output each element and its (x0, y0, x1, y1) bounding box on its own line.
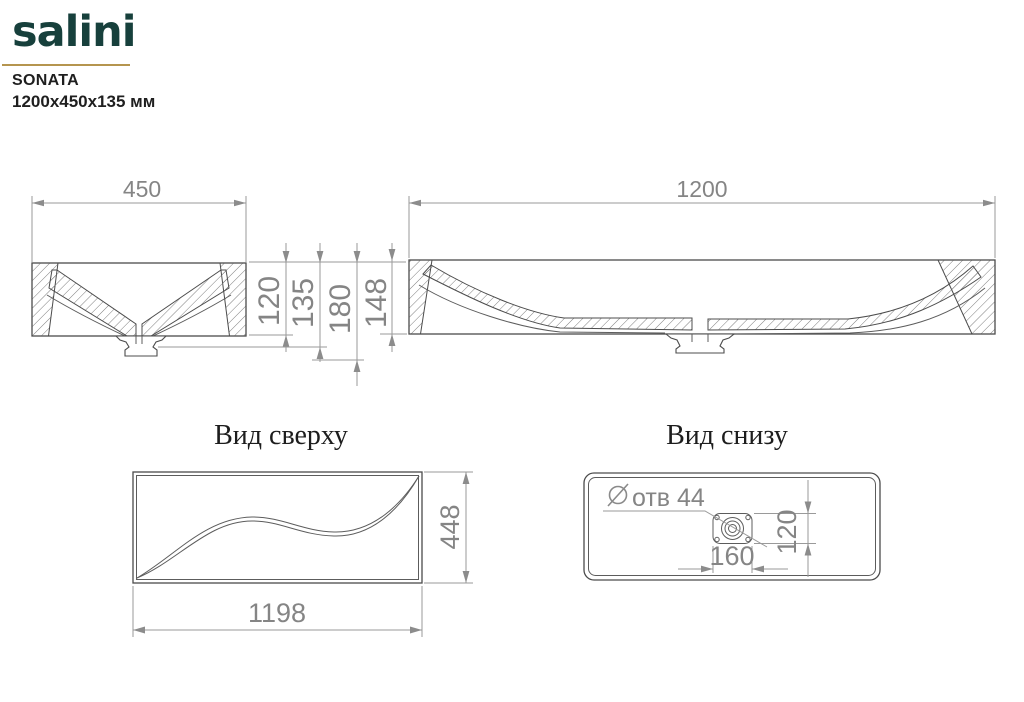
technical-drawing-page: salini SONATA 1200x450x135 мм 450 (0, 0, 1024, 702)
top-view-title: Вид сверху (214, 420, 348, 451)
drain-plate (713, 514, 752, 544)
dim-top-length: 1198 (248, 598, 306, 628)
dim-hole-note: отв 44 (632, 484, 705, 512)
dim-front-width: 1200 (676, 176, 727, 202)
top-view: Вид сверху 448 1198 (133, 420, 473, 637)
top-view-length-dimension: 1198 (133, 586, 422, 637)
dim-height-total: 135 (287, 278, 320, 328)
bottom-view: Вид снизу отв 44 (584, 420, 880, 580)
top-view-width-dimension: 448 (424, 472, 473, 583)
diameter-icon (608, 484, 628, 506)
drain-plate-height-dimension: 120 (754, 480, 816, 577)
dim-top-width: 448 (435, 504, 465, 549)
dim-side-width: 450 (123, 176, 161, 202)
dim-basin-depth: 120 (253, 276, 286, 326)
dim-drain-plate-height: 120 (772, 509, 802, 554)
dim-drain-plate-width: 160 (709, 541, 754, 571)
dim-height-with-drain: 180 (324, 284, 357, 334)
dim-height-front: 148 (360, 278, 393, 328)
bottom-view-title: Вид снизу (666, 420, 788, 451)
drain-hole-callout: отв 44 (603, 484, 767, 547)
side-width-dimension: 450 (32, 176, 246, 262)
front-width-dimension: 1200 (409, 176, 995, 258)
drawing-canvas: 450 120 (0, 0, 1024, 702)
side-section-view: 450 (32, 176, 246, 356)
front-section-view: 1200 (409, 176, 995, 353)
